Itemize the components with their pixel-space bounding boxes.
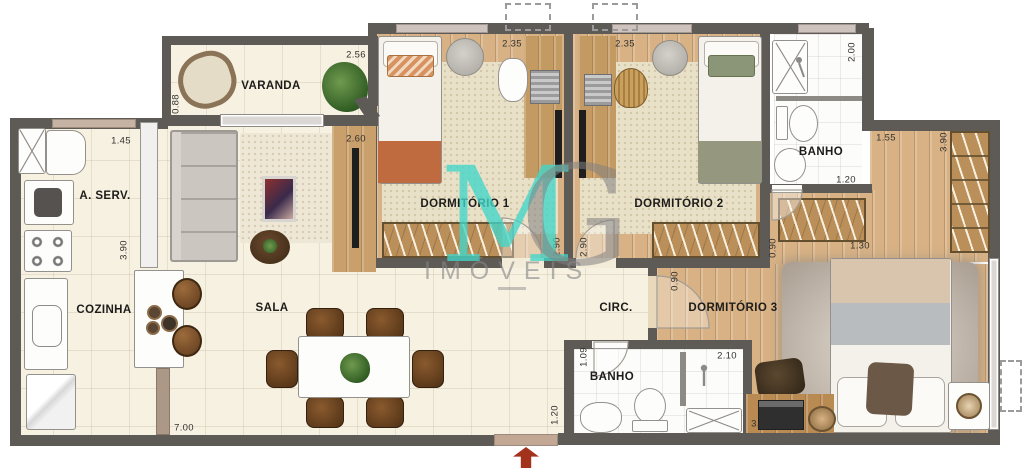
wall-bottom-right: [558, 433, 992, 445]
wall-art: [262, 176, 296, 222]
tv-dorm1: [555, 110, 562, 178]
dim-label: 2.90: [552, 237, 563, 257]
dim-label: 7.00: [174, 423, 194, 434]
dim-label: 1.09: [579, 347, 590, 367]
door-gap-dorm2: [576, 258, 616, 268]
bed-dorm2: [698, 36, 762, 184]
wall-banho-suite-right: [862, 28, 874, 124]
dim-label: 3.90: [939, 132, 950, 152]
bed3-runner: [831, 303, 950, 345]
door-gap-banho-social: [592, 341, 628, 348]
lamp-nightstand: [956, 393, 982, 419]
cooktop-burner-1: [147, 305, 162, 320]
dim-label: 1.30: [850, 241, 870, 252]
bed2-blanket: [698, 141, 761, 183]
wardrobe-dorm1: [382, 222, 514, 258]
table-plant: [263, 239, 277, 253]
label-circulacao: CIRC.: [599, 302, 632, 314]
bed2-accent-pillow: [708, 55, 755, 77]
kitchen-sink-basin: [32, 305, 62, 347]
dashed-unit-dorm1: [505, 3, 551, 31]
dim-label: 1.20: [550, 405, 561, 425]
nightstand-dorm3: [948, 382, 990, 430]
wall-dorm1-dorm2: [564, 23, 573, 268]
toilet-social-tank: [632, 420, 668, 432]
tv-sala: [352, 148, 359, 248]
door-gap-banho-suite: [772, 185, 802, 192]
lamp-dorm3-desk: [808, 406, 836, 432]
coffee-table: [250, 230, 290, 264]
bed1-blanket: [378, 141, 441, 183]
label-varanda: VARANDA: [241, 80, 300, 92]
dim-label: 3.90: [119, 240, 130, 260]
dashed-unit-dorm3: [1000, 360, 1022, 412]
wall-varanda-top: [162, 36, 378, 45]
closet-dorm3-corridor: [778, 198, 866, 242]
dim-label: 2.10: [717, 351, 737, 362]
dim-label: 3.15: [751, 419, 771, 430]
bed-dorm3: [830, 258, 952, 433]
dining-chair-6: [412, 350, 444, 388]
dashed-unit-dorm2: [592, 3, 638, 31]
label-dormitorio1: DORMITÓRIO 1: [420, 198, 509, 210]
entry-door: [494, 434, 558, 446]
wall-bottom-left: [10, 435, 494, 446]
bed1-accent-pillow: [387, 55, 434, 77]
monitor-dorm2: [584, 74, 612, 106]
tv-dorm2: [579, 110, 586, 178]
washing-machine: [24, 180, 74, 225]
dining-centerpiece: [340, 353, 370, 383]
bed-dorm1: [378, 36, 442, 184]
window-banho-suite: [798, 24, 856, 33]
shower-divider-suite: [776, 96, 862, 101]
service-entry-strip: [52, 119, 136, 128]
washer-drum: [34, 188, 62, 217]
wall-shower-divider: [680, 352, 686, 406]
wall-kitchen-living: [140, 122, 158, 268]
floor-plan: VARANDA A. SERV. COZINHA SALA DORMITÓRIO…: [0, 0, 1024, 475]
label-dormitorio3: DORMITÓRIO 3: [688, 302, 777, 314]
hanging-chair-dorm2: [652, 40, 688, 76]
desk-chair-dorm1: [498, 58, 528, 102]
shower-tray-suite: [772, 40, 808, 94]
dim-label: 2.00: [847, 42, 858, 62]
hanging-chair-dorm1: [446, 38, 484, 76]
label-banho-suite: BANHO: [799, 146, 843, 158]
label-area-servico: A. SERV.: [79, 190, 130, 202]
dining-chair-5: [266, 350, 298, 388]
fridge: [26, 374, 76, 430]
bed3-duvet: [831, 259, 950, 305]
shaft-box: [18, 128, 46, 174]
toilet-social-bowl: [634, 388, 666, 424]
dining-chair-4: [366, 396, 404, 428]
closet-dorm3-right: [950, 131, 990, 253]
dim-label: 1.55: [876, 133, 896, 144]
dim-label: 0.90: [768, 238, 779, 258]
sink-social: [580, 402, 622, 433]
dim-label: 0.90: [670, 271, 681, 291]
entrance-arrow-icon: [513, 447, 539, 468]
window-dorm1: [396, 24, 488, 33]
desk-chair-dorm3: [754, 357, 807, 399]
dim-label: 2.60: [346, 134, 366, 145]
stool-1: [172, 278, 202, 310]
wardrobe-dorm2: [652, 222, 760, 258]
dining-table: [298, 336, 410, 398]
cooktop-burner-3: [146, 321, 160, 335]
window-dormitorio3: [989, 258, 999, 430]
dim-label: 2.35: [502, 39, 522, 50]
label-banho-social: BANHO: [590, 371, 634, 383]
label-cozinha: COZINHA: [76, 304, 131, 316]
dim-label: 0.88: [171, 94, 182, 114]
sofa: [170, 130, 238, 262]
stool-2: [172, 325, 202, 357]
dim-label: 2.35: [615, 39, 635, 50]
plant-varanda: [322, 62, 368, 112]
door-gap-dorm1: [502, 258, 544, 268]
dining-chair-3: [306, 396, 344, 428]
wall-varanda-bottom-left: [162, 115, 220, 126]
shower-tray-social: [686, 408, 742, 433]
rattan-chair-dorm2: [614, 68, 648, 108]
toilet-suite-bowl: [789, 105, 818, 142]
toilet-suite-tank: [776, 106, 788, 140]
monitor-dorm1: [530, 70, 560, 104]
dim-label: 1.20: [836, 175, 856, 186]
dim-label: 1.45: [111, 136, 131, 147]
label-dormitorio2: DORMITÓRIO 2: [634, 198, 723, 210]
bed3-pillow-center: [866, 362, 915, 416]
wall-dormitorio3-top: [862, 120, 1000, 131]
kitchen-sink-counter: [24, 278, 68, 370]
half-wall-kitchen: [156, 368, 170, 435]
wall-banho-social-left: [564, 340, 574, 440]
dim-label: 2.90: [579, 237, 590, 257]
stove: [24, 230, 72, 272]
dim-label: 2.56: [346, 50, 366, 61]
label-sala: SALA: [256, 302, 289, 314]
wall-dorms-bottom: [368, 258, 770, 268]
laundry-sink: [46, 130, 86, 175]
window-varanda-slider: [220, 114, 324, 127]
door-gap-dorm3: [648, 276, 657, 328]
